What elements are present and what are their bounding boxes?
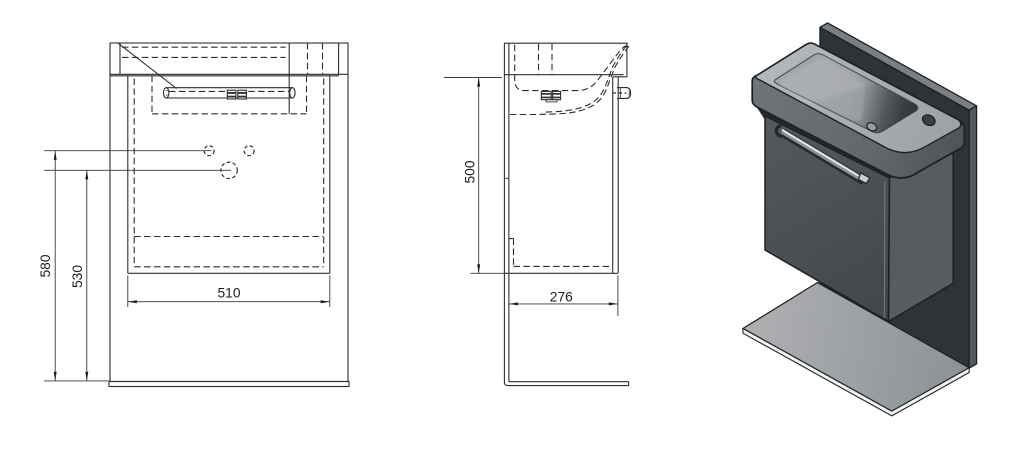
svg-text:276: 276 xyxy=(550,290,573,305)
svg-text:500: 500 xyxy=(462,160,477,183)
svg-text:580: 580 xyxy=(38,254,53,277)
svg-text:530: 530 xyxy=(70,265,85,288)
svg-text:510: 510 xyxy=(217,285,240,300)
